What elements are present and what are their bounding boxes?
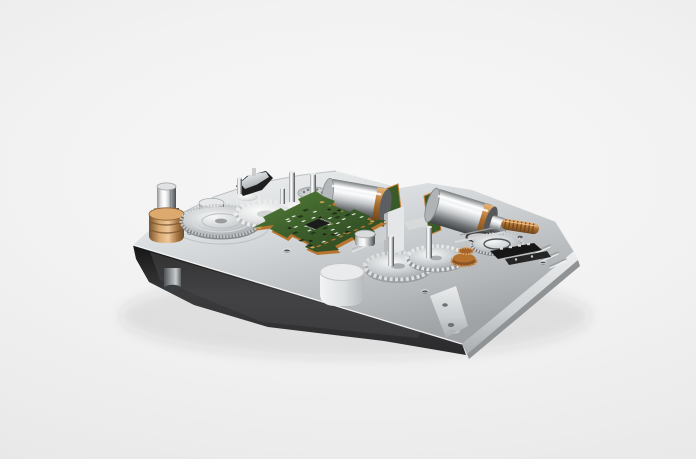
receptacle-top: [355, 230, 375, 238]
connector-dot-1: [515, 258, 517, 260]
planet-dot-5: [316, 188, 319, 191]
planet-dot-1: [303, 191, 306, 194]
connector-pin-1: [500, 248, 503, 250]
connector-pin-4: [527, 243, 530, 245]
rg2-shaft: [426, 227, 432, 258]
receptacle-boss: [355, 230, 375, 246]
connector-pin-3: [518, 245, 521, 247]
pocket-hole-1: [442, 303, 448, 307]
brass-top: [149, 208, 184, 220]
pin: [237, 177, 242, 194]
pin: [280, 187, 285, 204]
connector-pin-2: [509, 246, 512, 248]
pin: [289, 171, 295, 202]
pocket-hole-2: [448, 323, 454, 327]
assembly-render: [0, 0, 696, 459]
disc-hub: [215, 219, 227, 224]
rg1-shaft: [388, 236, 394, 266]
connector-dot-2: [531, 255, 533, 257]
foot-pin: [164, 268, 181, 291]
render-canvas: [0, 0, 696, 459]
bracket-pin: [252, 168, 256, 176]
hex-top: [157, 183, 176, 190]
brass-bushing: [149, 183, 184, 243]
cp-high: [459, 248, 474, 254]
front-boss: [320, 264, 364, 307]
foot-bottom: [164, 285, 181, 291]
rg2-shaft-top: [426, 226, 432, 228]
rg1-shaft-top: [388, 235, 394, 237]
boss-top: [320, 264, 364, 281]
planet-dot-6: [307, 189, 310, 192]
